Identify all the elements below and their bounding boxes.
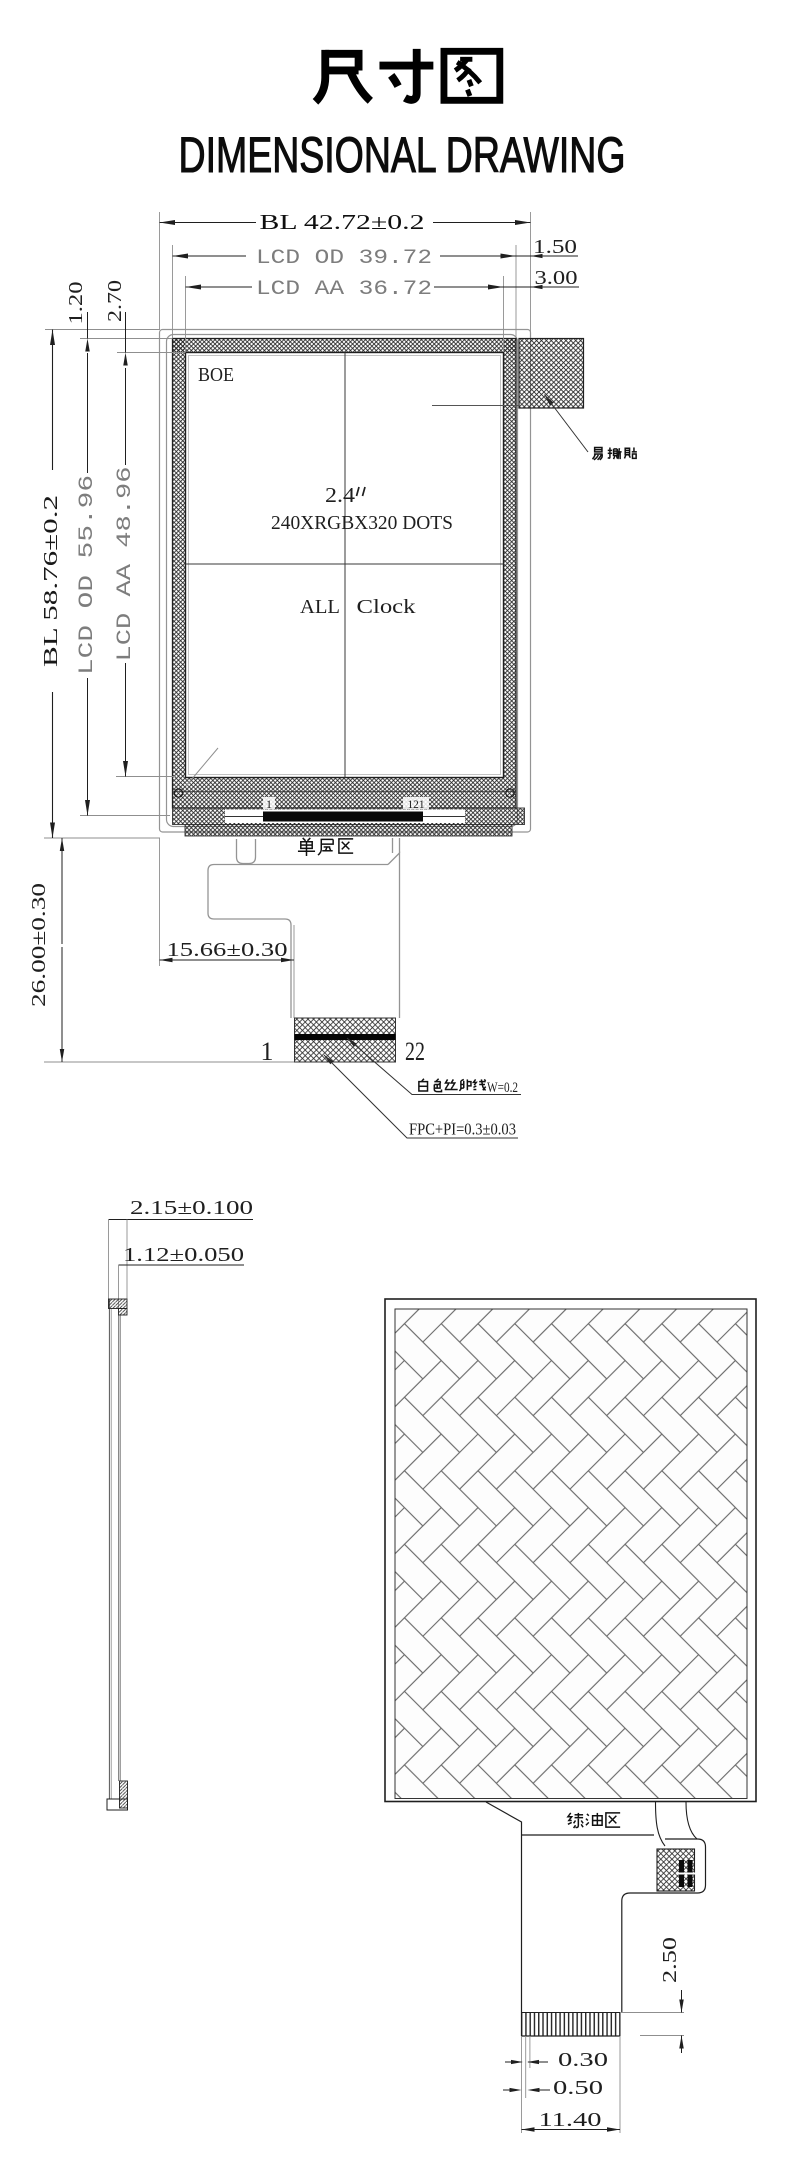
svg-text:2.50: 2.50 xyxy=(659,1937,681,1983)
svg-text:2.70: 2.70 xyxy=(104,280,126,322)
svg-text:1.50: 1.50 xyxy=(533,236,577,258)
svg-text:0.30: 0.30 xyxy=(558,2049,608,2071)
svg-text:LCD AA 48.96: LCD AA 48.96 xyxy=(114,467,137,662)
svg-text:0.50: 0.50 xyxy=(553,2077,603,2099)
svg-text:Clock: Clock xyxy=(357,596,416,618)
svg-text:22: 22 xyxy=(405,1037,425,1066)
svg-text:2.15±0.100: 2.15±0.100 xyxy=(130,1197,253,1219)
svg-text:121: 121 xyxy=(408,797,425,811)
svg-text:1.20: 1.20 xyxy=(65,282,87,325)
svg-text:240XRGBX320 DOTS: 240XRGBX320 DOTS xyxy=(271,512,453,534)
svg-text:3.00: 3.00 xyxy=(535,267,578,289)
svg-text:15.66±0.30: 15.66±0.30 xyxy=(167,939,288,961)
svg-text:11.40: 11.40 xyxy=(539,2109,602,2131)
svg-text:26.00±0.30: 26.00±0.30 xyxy=(28,883,50,1007)
svg-text:1.12±0.050: 1.12±0.050 xyxy=(123,1244,244,1266)
svg-text:LCD OD 39.72: LCD OD 39.72 xyxy=(256,247,432,270)
svg-text:BL 42.72±0.2: BL 42.72±0.2 xyxy=(260,210,425,234)
svg-text:1: 1 xyxy=(261,1037,274,1066)
svg-text:2.4: 2.4 xyxy=(325,483,356,507)
svg-text:W=0.2: W=0.2 xyxy=(487,1080,518,1096)
svg-text:ALL: ALL xyxy=(300,596,340,618)
svg-text:LCD AA 36.72: LCD AA 36.72 xyxy=(256,278,432,301)
svg-text:1: 1 xyxy=(266,797,272,811)
svg-text:LCD OD 55.96: LCD OD 55.96 xyxy=(76,475,99,675)
svg-text:DIMENSIONAL DRAWING: DIMENSIONAL DRAWING xyxy=(179,127,626,183)
svg-text:BOE: BOE xyxy=(198,364,234,386)
svg-text:BL 58.76±0.2: BL 58.76±0.2 xyxy=(40,495,62,667)
svg-text:FPC+PI=0.3±0.03: FPC+PI=0.3±0.03 xyxy=(409,1120,516,1139)
